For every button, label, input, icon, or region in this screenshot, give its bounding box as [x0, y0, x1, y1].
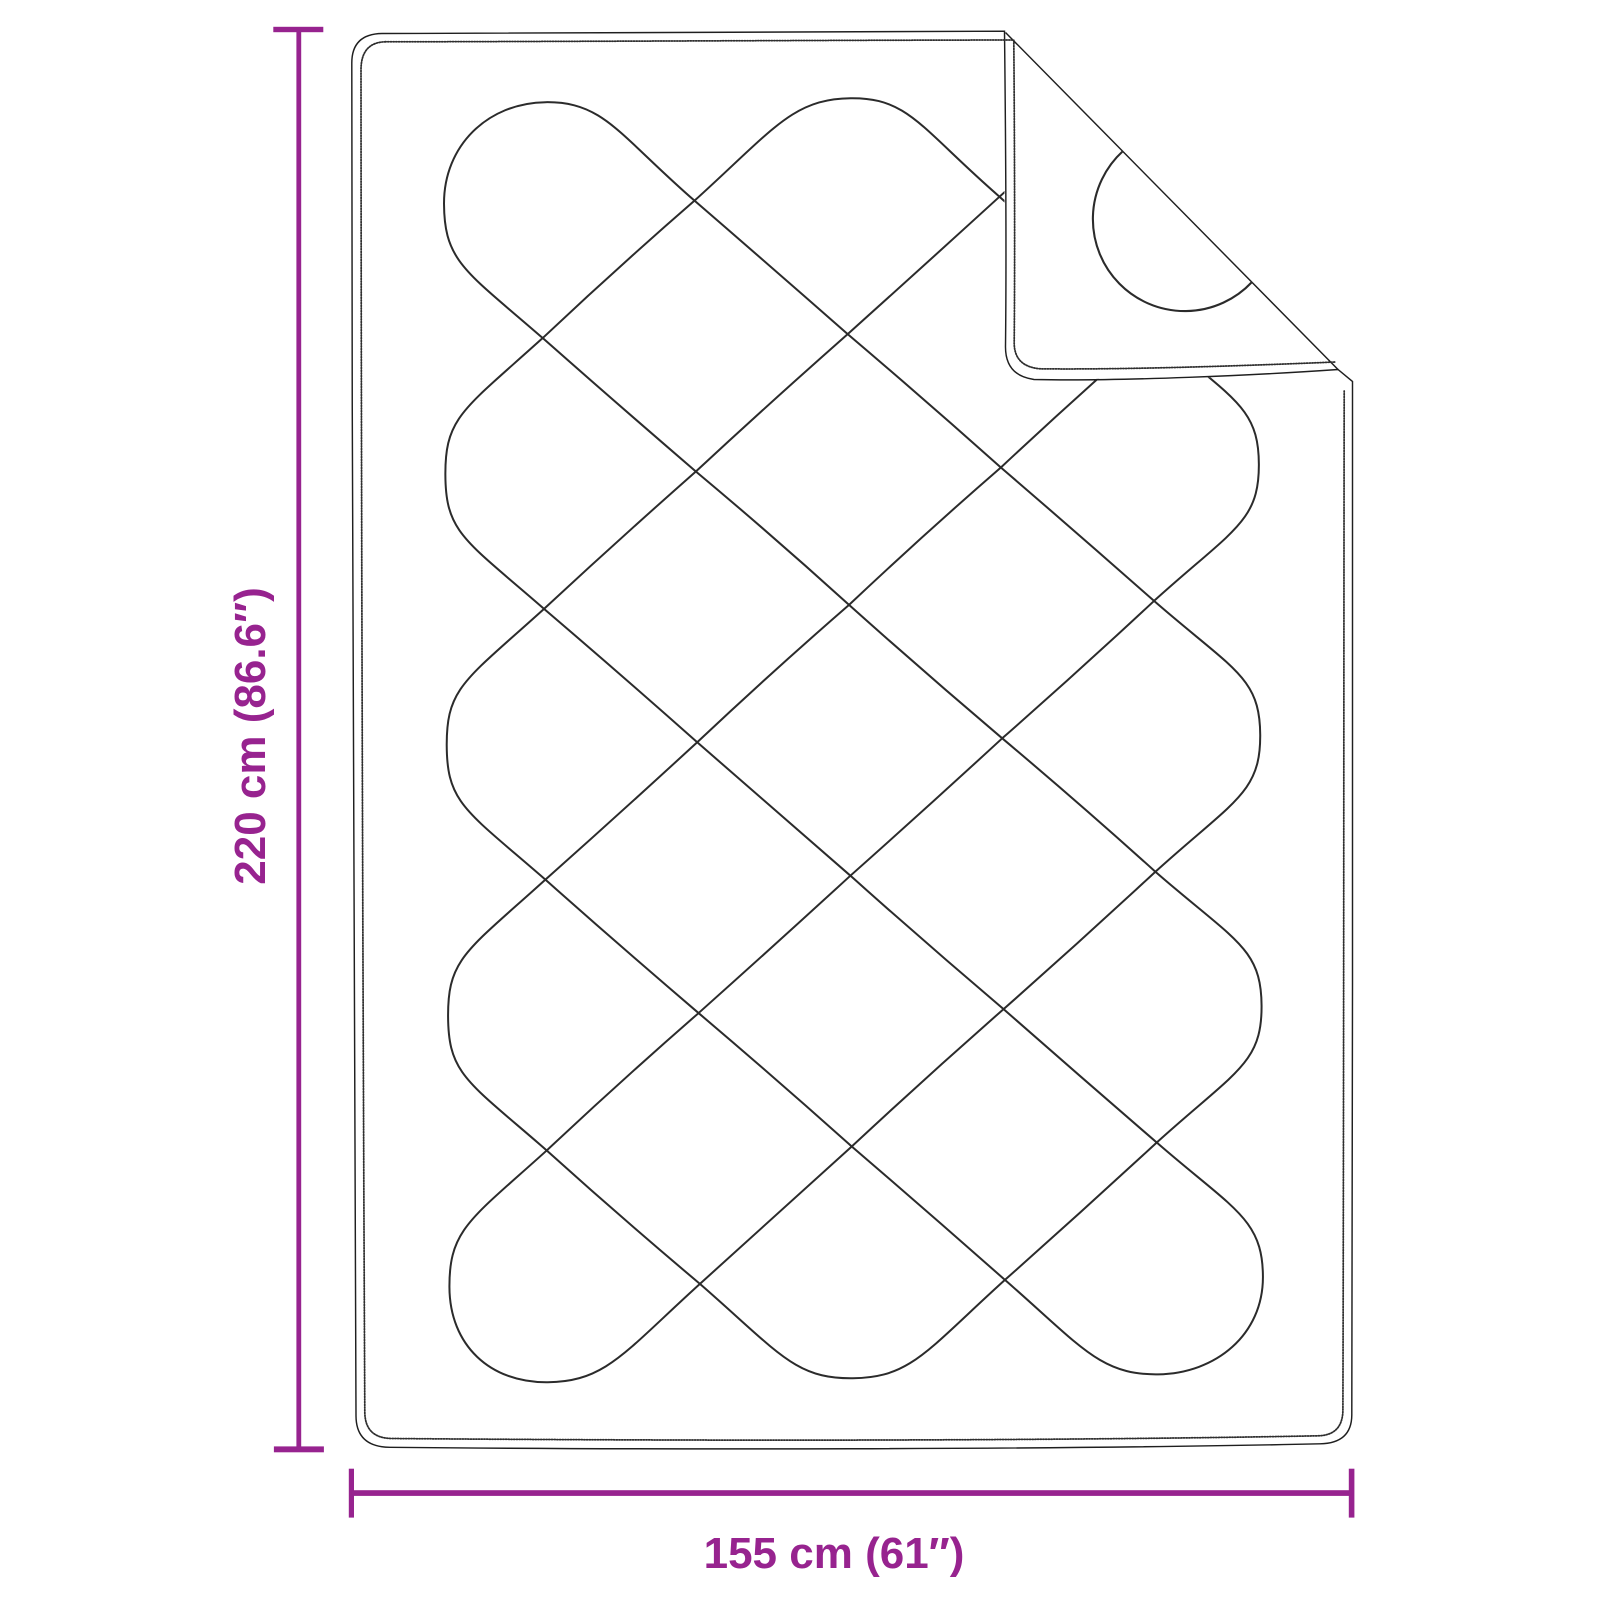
svg-text:155 cm (61″): 155 cm (61″)	[704, 1529, 965, 1578]
svg-text:220 cm (86.6″): 220 cm (86.6″)	[226, 587, 275, 884]
